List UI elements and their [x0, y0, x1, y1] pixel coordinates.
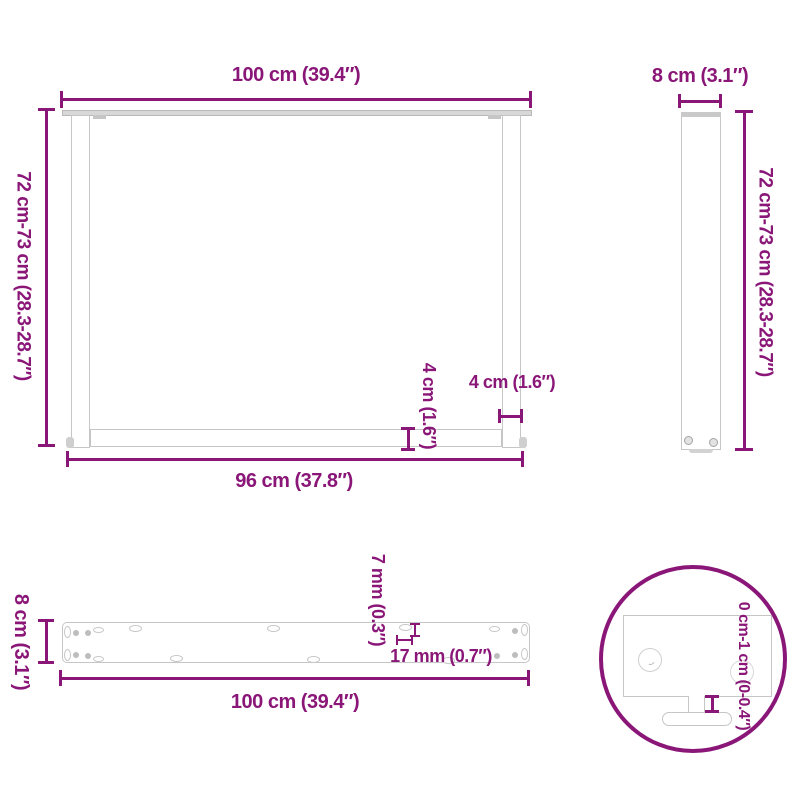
bar-screw-hole	[494, 653, 500, 659]
front-plate-bracket-left	[93, 115, 106, 119]
bar-length-label: 100 cm (39.4″)	[231, 692, 359, 712]
bar-slot-hole	[93, 627, 104, 633]
crossbar-height-dim-tick-bottom	[401, 448, 415, 451]
side-depth-dim-tick-left	[678, 94, 681, 108]
bar-width-dim-tick-top	[38, 619, 54, 622]
bar-slot-hole	[399, 624, 412, 631]
foot-adjust-dim-tick-top	[705, 695, 719, 698]
front-width-dim-tick-left	[60, 91, 63, 108]
leg-width-dim-tick-left	[498, 409, 501, 423]
front-width-dim-line	[60, 98, 532, 101]
detail-foot-stem	[688, 696, 705, 713]
front-height-label: 72 cm-73 cm (28.3-28.7″)	[14, 171, 33, 380]
front-width-dim-tick-right	[529, 91, 532, 108]
bar-screw-hole	[85, 653, 91, 659]
detail-foot-pad	[662, 712, 732, 726]
bar-length-dim-line	[60, 677, 530, 680]
bar-length-dim-tick-left	[59, 670, 62, 686]
slot-width-dim-tick-top	[410, 623, 420, 625]
bar-slot-width-label: 7 mm (0.3″)	[369, 554, 387, 646]
bar-slot-hole	[489, 626, 500, 632]
bar-slot-hole	[129, 625, 142, 632]
front-height-dim-tick-top	[38, 108, 55, 111]
bar-screw-hole	[512, 652, 518, 658]
bar-slot-hole	[170, 655, 183, 662]
bar-slot-hole	[64, 649, 71, 661]
front-bottom-crossbar	[90, 429, 502, 447]
crossbar-height-dim-line	[407, 429, 410, 450]
front-inner-width-dim-tick-right	[521, 451, 524, 467]
bar-width-dim-line	[45, 621, 48, 664]
front-height-dim-line	[45, 108, 48, 447]
front-inner-width-dim-tick-left	[66, 451, 69, 467]
product-dimension-diagram: 100 cm (39.4″) 72 cm-73 cm (28.3-28.7″) …	[0, 0, 800, 800]
bar-slot-hole	[521, 648, 528, 660]
front-right-foot-nub	[519, 437, 527, 448]
side-height-dim-line	[743, 110, 746, 450]
leg-width-dim-line	[499, 415, 522, 418]
side-foot-pad	[689, 449, 713, 453]
bar-slot-hole	[64, 626, 71, 638]
leg-width-label: 4 cm (1.6″)	[469, 373, 555, 391]
side-leg	[681, 112, 721, 450]
front-height-dim-tick-bottom	[38, 444, 55, 447]
bar-slot-hole	[267, 625, 280, 632]
bar-screw-hole	[85, 630, 91, 636]
front-right-leg	[502, 115, 521, 448]
foot-adjust-dim-tick-bottom	[705, 710, 719, 713]
crossbar-height-label: 4 cm (1.6″)	[420, 363, 438, 449]
bar-slot-hole	[521, 624, 528, 636]
front-top-plate	[62, 110, 532, 116]
bar-slot-length-label: 17 mm (0.7″)	[390, 647, 492, 665]
bar-screw-hole	[73, 652, 79, 658]
leg-width-dim-tick-right	[520, 409, 523, 423]
bar-length-dim-tick-right	[527, 670, 530, 686]
front-inner-width-label: 96 cm (37.8″)	[235, 471, 353, 491]
side-screw-left	[684, 436, 693, 445]
side-top-plate-edge	[681, 112, 721, 117]
front-inner-width-dim-line	[67, 458, 523, 461]
side-height-label: 72 cm-73 cm (28.3-28.7″)	[756, 167, 775, 376]
side-height-dim-tick-bottom	[735, 448, 753, 451]
bar-slot-hole	[307, 656, 320, 663]
slot-length-dim-tick-right	[411, 635, 413, 645]
side-depth-label: 8 cm (3.1″)	[652, 66, 748, 86]
slot-length-dim-tick-left	[396, 635, 398, 645]
bar-width-label: 8 cm (3.1″)	[11, 594, 31, 690]
side-screw-right	[709, 438, 718, 447]
front-plate-bracket-right	[488, 115, 501, 119]
foot-adjust-label: 0 cm-1 cm (0-0.4″)	[735, 602, 751, 731]
front-left-leg	[71, 115, 90, 448]
side-height-dim-tick-top	[735, 110, 753, 113]
bar-width-dim-tick-bottom	[38, 661, 54, 664]
bar-slot-hole	[93, 656, 104, 662]
side-depth-dim-tick-right	[719, 94, 722, 108]
foot-detail-circle: 0 cm-1 cm (0-0.4″)	[599, 565, 787, 753]
bar-screw-hole	[73, 630, 79, 636]
crossbar-height-dim-tick-top	[401, 427, 415, 430]
front-width-label: 100 cm (39.4″)	[232, 65, 360, 85]
front-left-foot-nub	[66, 437, 74, 448]
side-depth-dim-line	[679, 100, 722, 103]
bar-screw-hole	[512, 628, 518, 634]
